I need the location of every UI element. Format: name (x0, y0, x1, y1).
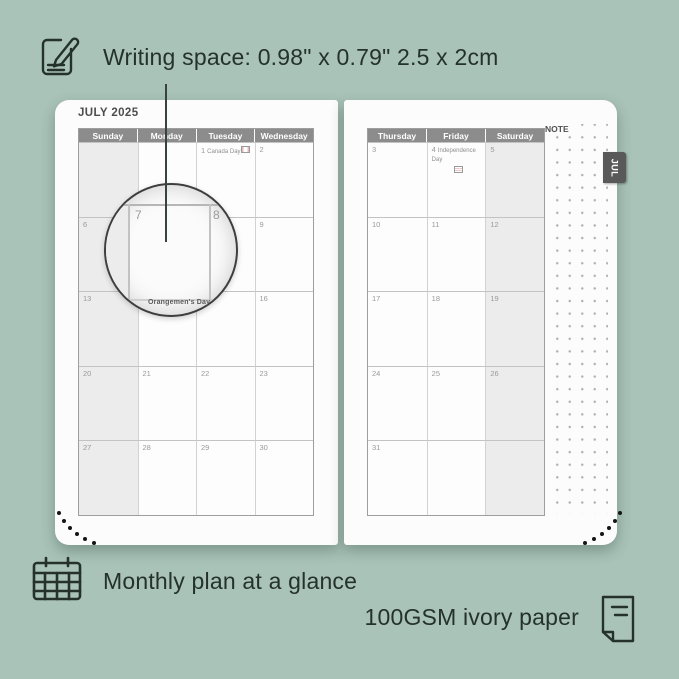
day-cell: 29 (196, 440, 255, 515)
weekday-header: Tuesday (197, 129, 255, 142)
planner-right-page: ThursdayFridaySaturday 34Independence Da… (344, 100, 617, 545)
day-cell: 25 (427, 366, 486, 441)
day-cell: 19 (485, 291, 544, 366)
day-cell: 20 (79, 366, 138, 441)
day-number: 23 (260, 369, 268, 378)
calendar-right: ThursdayFridaySaturday 34Independence Da… (367, 128, 545, 516)
day-number: 12 (490, 220, 498, 229)
day-number: 25 (432, 369, 440, 378)
writing-pad-pencil-icon (38, 33, 84, 81)
day-cell (427, 440, 486, 515)
pointer-line (165, 84, 167, 242)
day-number: 5 (490, 145, 494, 154)
month-tab-label: JUL (609, 158, 619, 177)
weekday-header: Thursday (368, 129, 426, 142)
day-number: 1 (201, 146, 205, 155)
canada-flag-icon (241, 146, 250, 153)
day-number: 10 (372, 220, 380, 229)
paper-sheet-icon (596, 593, 638, 645)
day-cell: 17 (368, 291, 427, 366)
magnified-day-8: 8 (213, 208, 220, 222)
holiday-label: Orangemen's Day (148, 299, 210, 306)
day-cell: 4Independence Day (427, 142, 486, 217)
day-number: 9 (260, 220, 264, 229)
day-number: 2 (260, 145, 264, 154)
day-number: 13 (83, 294, 91, 303)
holiday-label: Independence Day (432, 148, 476, 163)
day-cell: 28 (138, 440, 197, 515)
weekday-header: Wednesday (255, 129, 313, 142)
day-cell: 24 (368, 366, 427, 441)
monthly-plan-label: Monthly plan at a glance (103, 568, 357, 595)
day-number: 17 (372, 294, 380, 303)
weekday-header: Saturday (486, 129, 544, 142)
day-number: 27 (83, 443, 91, 452)
planner-left-page: JULY 2025 SundayMondayTuesdayWednesday 1… (55, 100, 338, 545)
day-cell: 9 (255, 217, 314, 292)
day-cell: 12 (485, 217, 544, 292)
day-number: 11 (432, 220, 440, 229)
product-infographic: Writing space: 0.98" x 0.79" 2.5 x 2cm J… (0, 0, 679, 679)
magnified-grid-line (128, 204, 130, 315)
day-cell: 27 (79, 440, 138, 515)
day-number: 28 (143, 443, 151, 452)
day-number: 19 (490, 294, 498, 303)
magnified-grid-line (106, 204, 236, 206)
day-cell: 31 (368, 440, 427, 515)
magnified-day-7: 7 (135, 208, 142, 222)
day-cell: 30 (255, 440, 314, 515)
day-cell (485, 440, 544, 515)
weekday-header: Friday (427, 129, 485, 142)
magnifier-circle: 7 8 (104, 183, 238, 317)
writing-space-label: Writing space: 0.98" x 0.79" 2.5 x 2cm (103, 44, 499, 71)
day-number: 18 (432, 294, 440, 303)
month-title: JULY 2025 (78, 107, 139, 119)
day-number: 24 (372, 369, 380, 378)
us-flag-icon (454, 166, 463, 173)
day-number: 4 (432, 145, 436, 154)
day-cell: 5 (485, 142, 544, 217)
magnified-grid-line (209, 204, 211, 300)
day-number: 3 (372, 145, 376, 154)
day-number: 29 (201, 443, 209, 452)
day-cell: 16 (255, 291, 314, 366)
day-number: 30 (260, 443, 268, 452)
day-number: 21 (143, 369, 151, 378)
calendar-icon (31, 555, 83, 603)
day-cell: 22 (196, 366, 255, 441)
holiday-label: Canada Day (207, 149, 240, 155)
day-number: 31 (372, 443, 380, 452)
note-dot-grid (546, 124, 608, 514)
day-cell: 23 (255, 366, 314, 441)
day-cell: 18 (427, 291, 486, 366)
paper-spec-label: 100GSM ivory paper (364, 604, 579, 631)
day-cell: 2 (255, 142, 314, 217)
weekday-header: Sunday (79, 129, 137, 142)
day-cell: 21 (138, 366, 197, 441)
day-number: 6 (83, 220, 87, 229)
day-number: 16 (260, 294, 268, 303)
day-cell: 11 (427, 217, 486, 292)
day-number: 22 (201, 369, 209, 378)
note-label: NOTE (545, 124, 573, 134)
month-tab: JUL (603, 152, 626, 183)
day-cell: 3 (368, 142, 427, 217)
day-number: 20 (83, 369, 91, 378)
day-cell: 10 (368, 217, 427, 292)
day-number: 26 (490, 369, 498, 378)
day-cell: 26 (485, 366, 544, 441)
